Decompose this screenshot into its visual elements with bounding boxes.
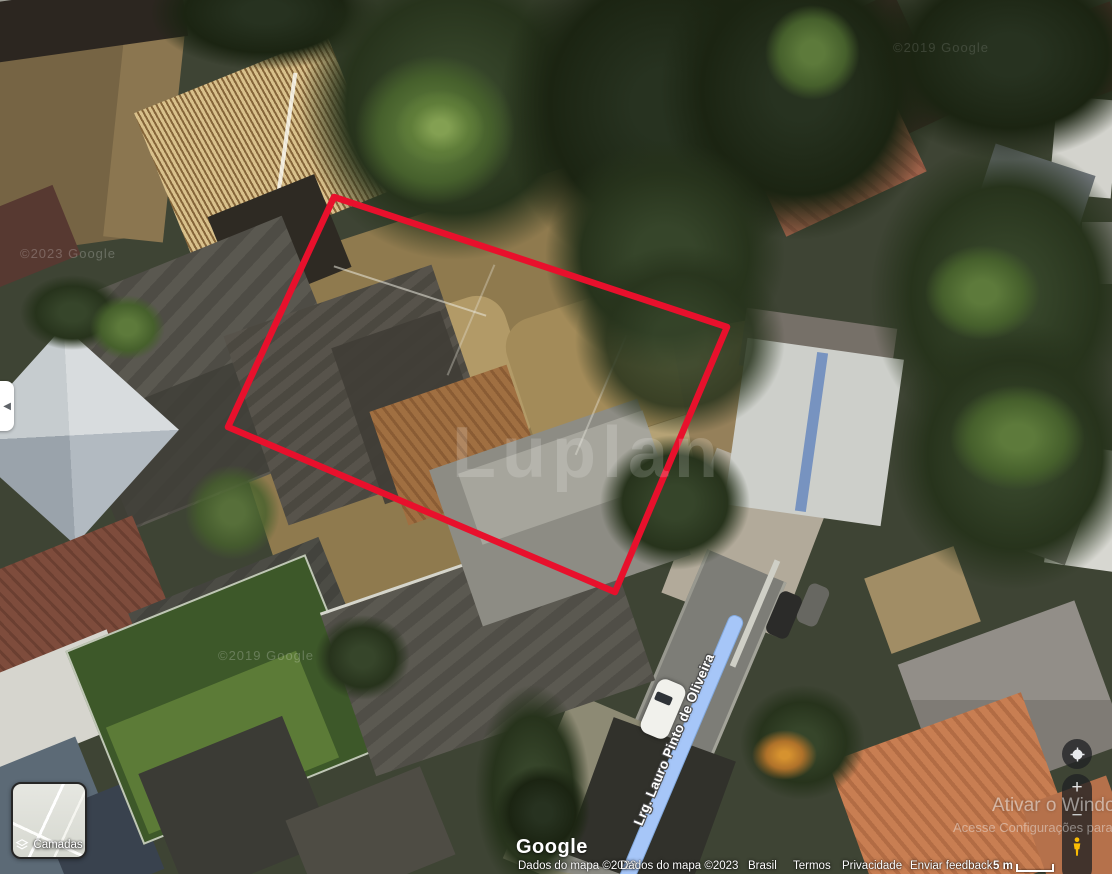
map-data-attribution: Dados do mapa ©2023 [620, 860, 738, 872]
google-logo[interactable]: Google [516, 836, 588, 859]
pegman-icon [1068, 836, 1086, 858]
palm-fronds [395, 90, 485, 165]
panel-collapse-button[interactable]: ◀ [0, 381, 14, 431]
bush [90, 295, 165, 360]
scale-label[interactable]: 5 m [993, 860, 1013, 872]
roof [285, 766, 455, 874]
terms-link[interactable]: Termos [793, 860, 831, 872]
layers-icon [15, 838, 29, 852]
tree-canopy [925, 245, 1040, 340]
flowering-bush [752, 730, 817, 780]
scale-bar[interactable] [1016, 864, 1054, 872]
feedback-link[interactable]: Enviar feedback [910, 860, 992, 872]
bush [185, 465, 280, 560]
tree-shadow [575, 245, 785, 435]
tree-canopy [765, 5, 860, 100]
my-location-button[interactable] [1062, 739, 1092, 769]
imagery-watermark: ©2023 Google [20, 246, 116, 261]
layers-button[interactable]: Camadas [11, 782, 87, 859]
imagery-watermark: ©2019 Google [893, 40, 989, 55]
os-activation-watermark: Ativar o Windows [992, 795, 1112, 817]
tree-canopy [950, 385, 1085, 490]
google-maps-window: ©2023 Google ©2019 Google ©2019 Google L… [0, 0, 1112, 874]
my-location-icon [1069, 746, 1086, 763]
chevron-left-icon: ◀ [3, 401, 11, 412]
imagery-watermark: ©2019 Google [218, 648, 314, 663]
layers-button-label: Camadas [33, 839, 82, 851]
os-activation-watermark-hint: Acesse Configurações para ativar o Windo… [953, 820, 1112, 835]
parked-car [795, 581, 832, 628]
map-data-attribution: Dados do mapa ©2023 [518, 860, 636, 872]
agency-watermark: Luplan [452, 412, 724, 494]
privacy-link[interactable]: Privacidade [842, 860, 902, 872]
pegman-button[interactable] [1068, 836, 1086, 863]
region-label: Brasil [748, 860, 777, 872]
bush [315, 615, 410, 700]
